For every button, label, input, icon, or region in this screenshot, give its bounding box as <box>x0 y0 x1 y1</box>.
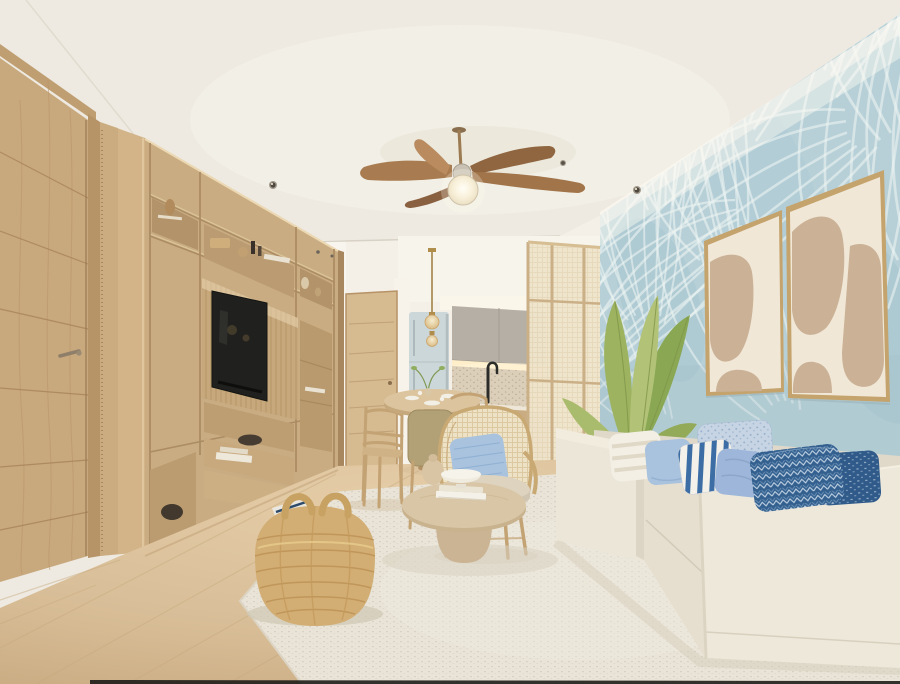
render-canvas <box>0 0 900 684</box>
recessed-light <box>633 186 641 194</box>
dark-vase <box>161 504 183 520</box>
door-knob <box>388 381 392 385</box>
recessed-light <box>269 181 277 189</box>
wood-entry-door <box>0 44 100 582</box>
living-room-render <box>0 0 900 684</box>
door-frame <box>88 114 100 558</box>
gourd-vase <box>422 459 444 485</box>
abstract-art-frame-left <box>704 210 784 397</box>
tv-screen <box>212 291 267 401</box>
fan-light <box>448 175 478 205</box>
gourd-vase-neck <box>429 454 438 462</box>
abstract-art-frame-right <box>786 170 890 404</box>
recessed-light <box>560 160 566 166</box>
pillow-navy-ikat <box>749 443 846 514</box>
wardrobe-panel <box>100 122 145 556</box>
decorative-bowl <box>238 435 262 446</box>
